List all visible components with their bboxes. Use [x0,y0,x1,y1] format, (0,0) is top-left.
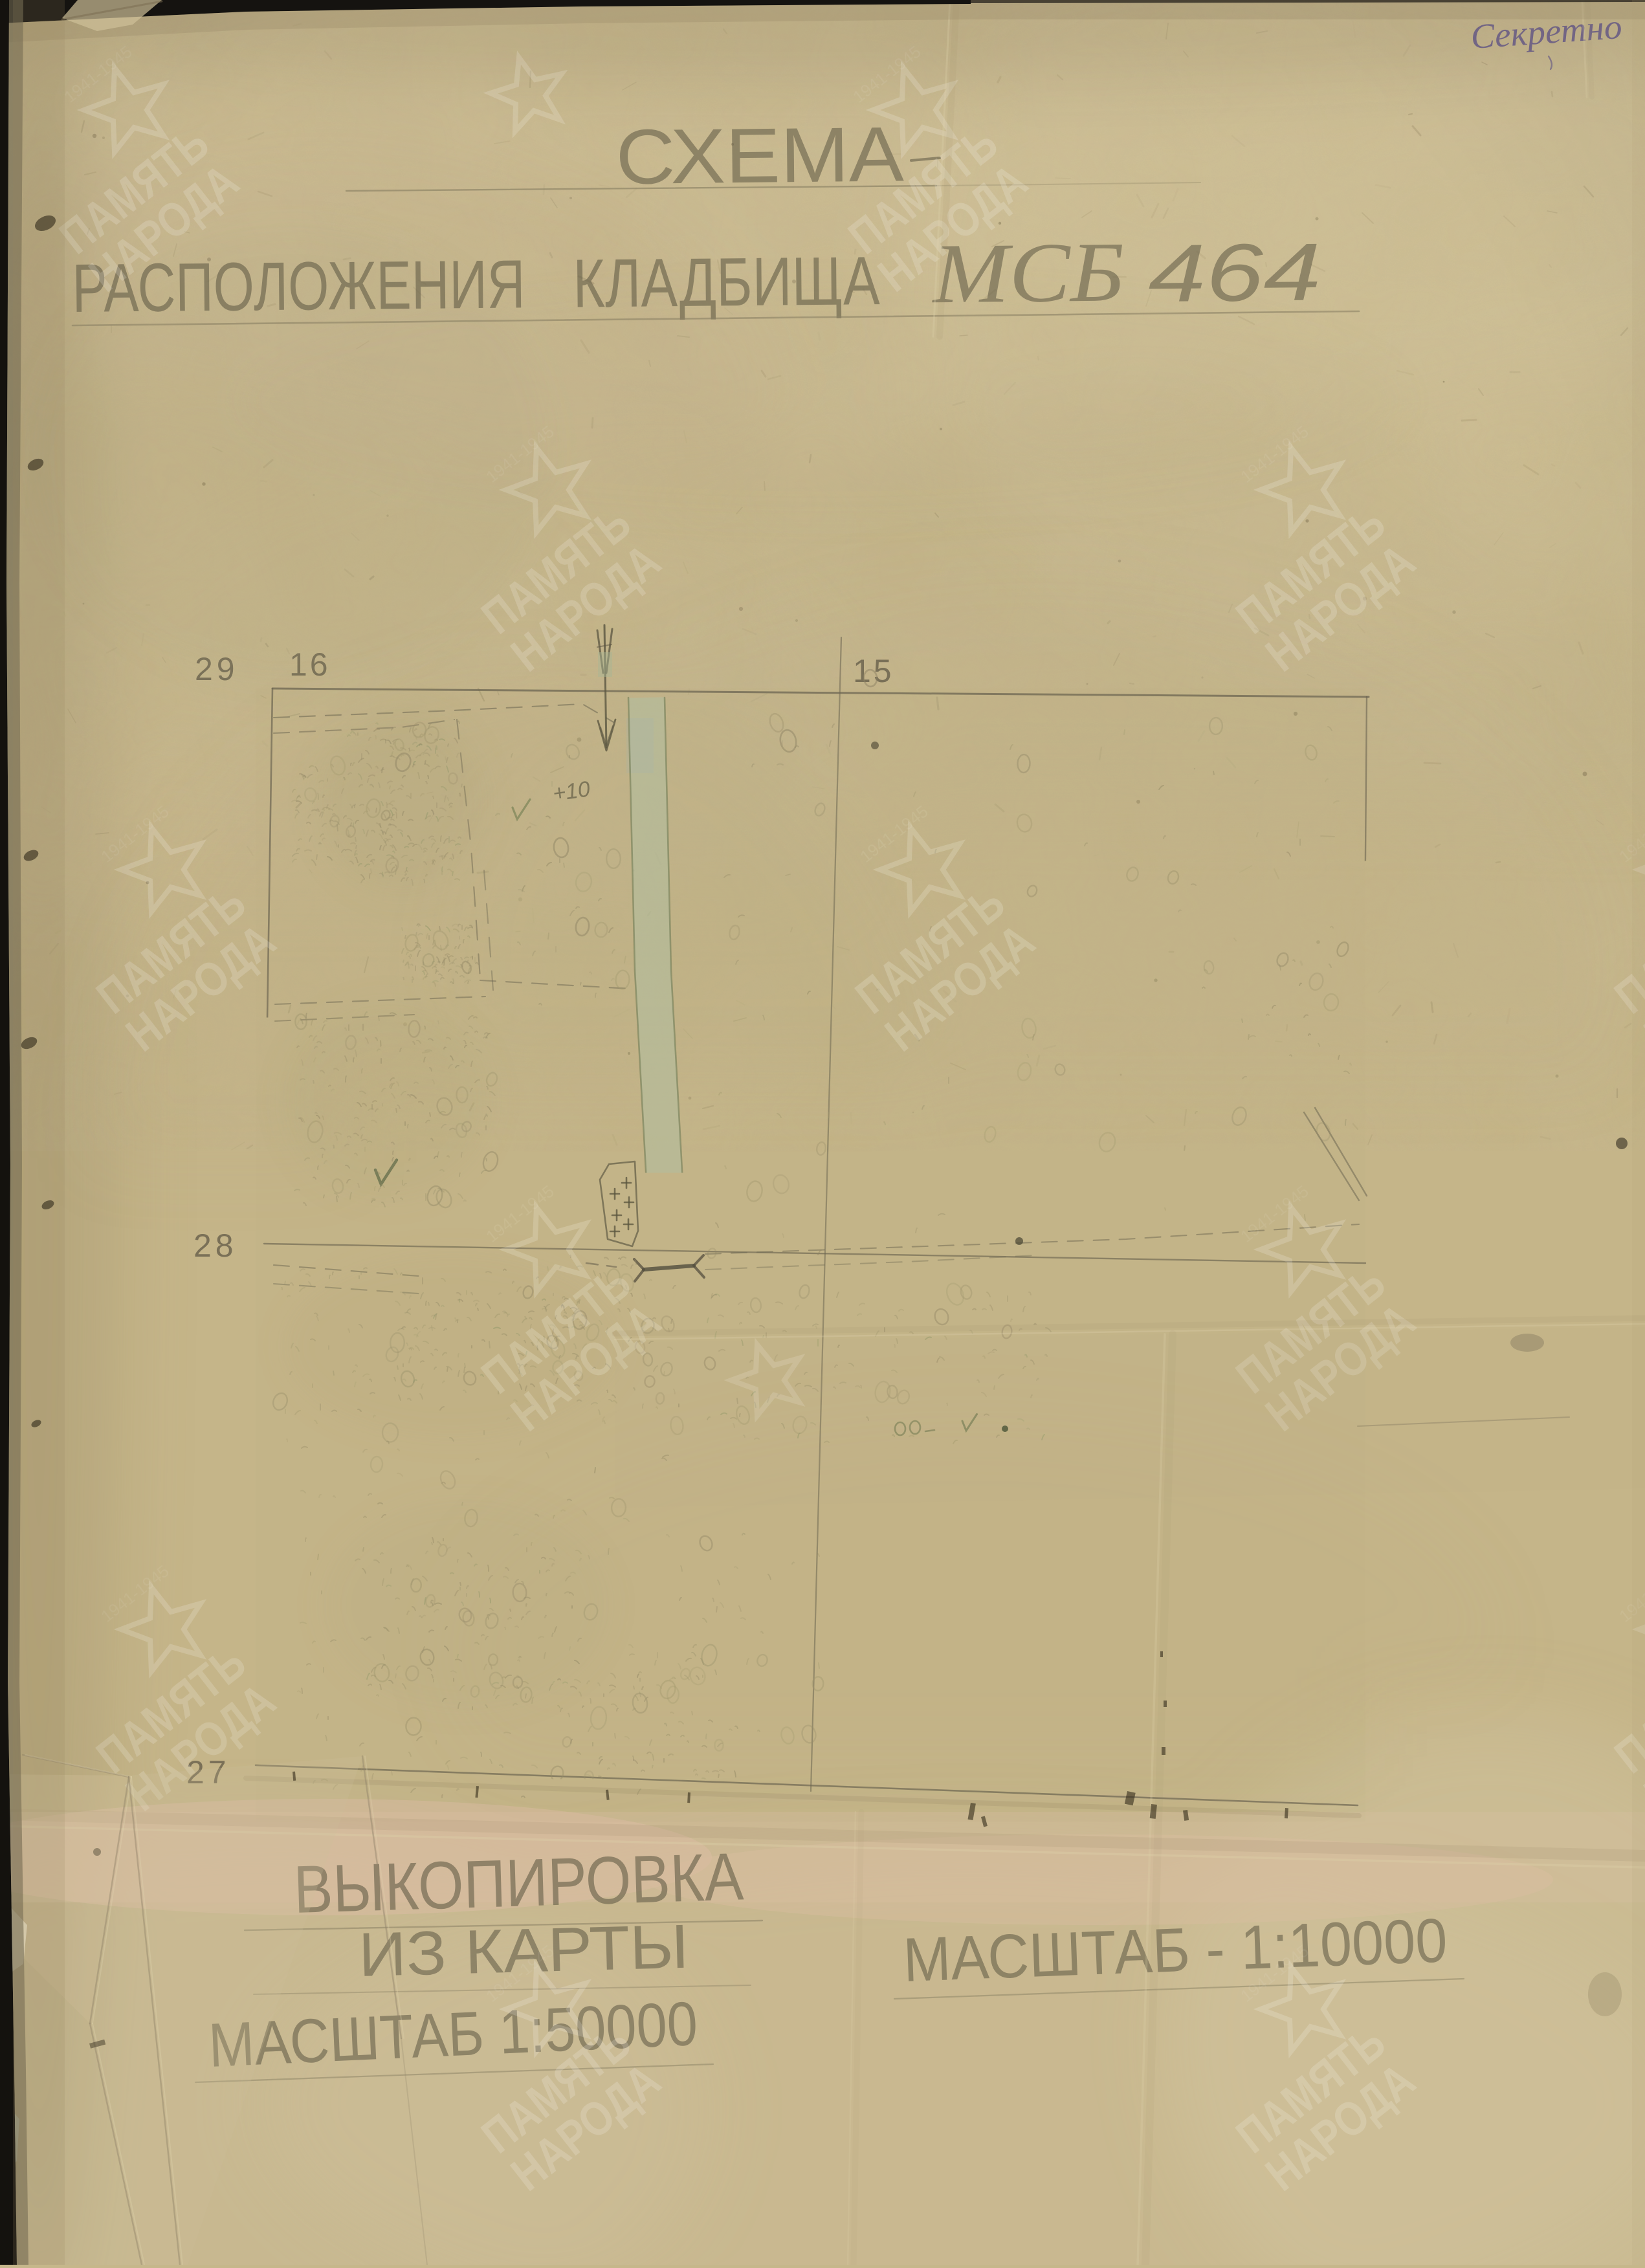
svg-text:КЛАДБИЩА: КЛАДБИЩА [573,243,880,322]
svg-text:28: 28 [193,1228,237,1264]
svg-text:464: 464 [1148,226,1321,319]
svg-text:КопироВал: КопироВал [898,2076,1090,2135]
